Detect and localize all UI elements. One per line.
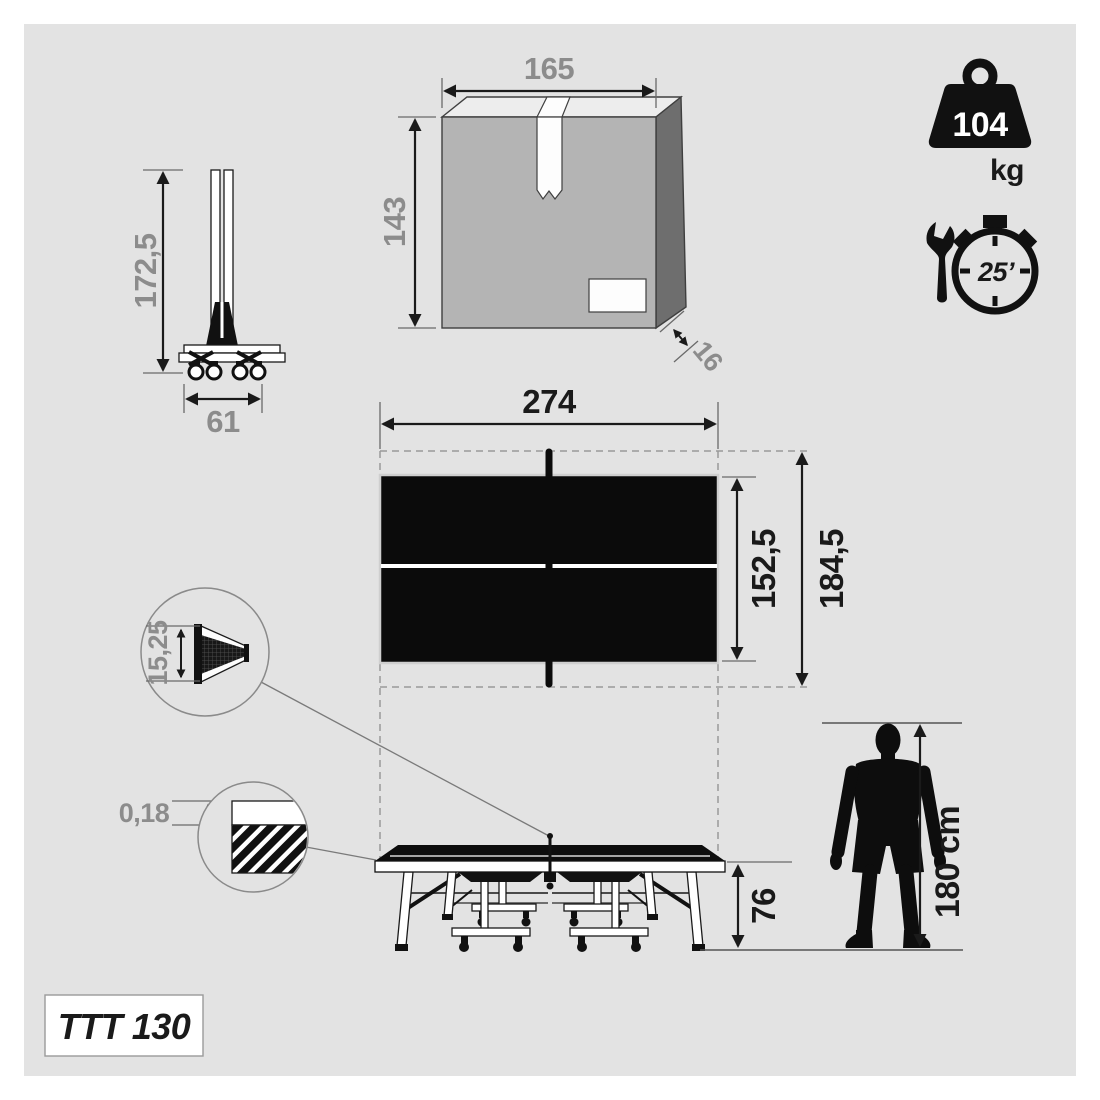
net-height-label: 15,25 <box>143 620 173 686</box>
model-label: TTT 130 <box>58 1006 191 1047</box>
box-height-dim: 143 <box>377 117 436 328</box>
caster-wheels <box>189 361 265 379</box>
footprint-width-dim: 184,5 <box>802 454 850 684</box>
box-depth-label: 16 <box>687 335 729 377</box>
model-badge: TTT 130 <box>45 995 203 1056</box>
weight-value: 104 <box>952 106 1008 144</box>
diagram-svg: 172,5 61 165 143 <box>0 0 1100 1100</box>
table-width-dim: 152,5 <box>722 477 782 661</box>
top-thickness-label: 0,18 <box>119 798 170 828</box>
person-height-dim: 180 cm <box>920 726 967 945</box>
folded-height-label: 172,5 <box>128 233 163 308</box>
table-length-label: 274 <box>522 383 577 420</box>
table-length-dim: 274 <box>380 383 718 449</box>
table-top-view <box>380 452 718 684</box>
table-side-view <box>375 833 725 952</box>
folded-width-label: 61 <box>206 404 240 439</box>
box-height-label: 143 <box>377 197 412 247</box>
surface-detail-magnifier: 0,18 <box>119 782 376 892</box>
table-height-label: 76 <box>745 888 782 924</box>
spec-sheet-page: 172,5 61 165 143 <box>0 0 1100 1100</box>
folded-height-dim: 172,5 <box>128 170 183 373</box>
table-width-label: 152,5 <box>745 529 782 609</box>
table-height-dim: 76 <box>727 862 792 946</box>
weight-icon: 104 <box>929 63 1031 148</box>
box-tape-front <box>537 117 562 199</box>
person-height-label: 180 cm <box>929 806 967 918</box>
folded-table-figure <box>179 170 285 379</box>
footprint-width-label: 184,5 <box>813 529 850 609</box>
box-width-label: 165 <box>524 51 574 86</box>
packaging-box-figure <box>442 97 686 328</box>
stopwatch-icon: 25’ <box>953 215 1037 311</box>
box-depth-dim: 16 <box>660 311 729 377</box>
box-shipping-label <box>589 279 646 312</box>
folded-width-dim: 61 <box>184 384 262 439</box>
wrench-icon <box>926 222 954 303</box>
assembly-time-value: 25’ <box>977 257 1015 287</box>
weight-unit: kg <box>990 154 1024 187</box>
